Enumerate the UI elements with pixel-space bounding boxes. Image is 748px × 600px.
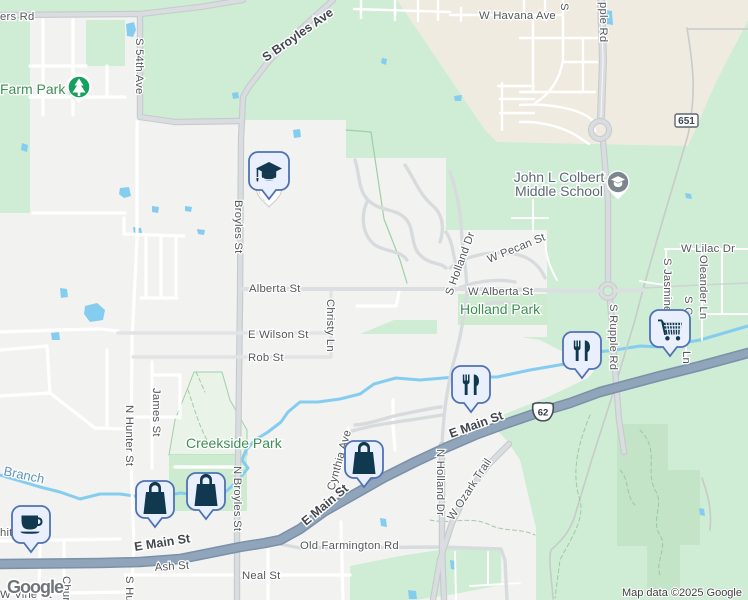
svg-text:Ln: Ln [680,351,692,364]
svg-text:Farm Park: Farm Park [0,81,66,97]
svg-text:Old Farmington Rd: Old Farmington Rd [300,540,399,552]
svg-text:Google: Google [7,577,64,597]
svg-text:S Hu: S Hu [123,576,135,600]
svg-text:S: S [558,3,570,11]
svg-text:Broyles St: Broyles St [232,200,244,254]
svg-text:Ash St: Ash St [154,560,190,574]
svg-text:James St: James St [150,388,162,437]
svg-text:N Holland Dr: N Holland Dr [434,449,446,516]
svg-text:Map data ©2025 Google: Map data ©2025 Google [622,587,742,599]
svg-text:651: 651 [678,116,695,127]
svg-text:62: 62 [538,408,549,419]
svg-text:W Lilac Dr: W Lilac Dr [681,243,735,255]
svg-text:W Havana Ave: W Havana Ave [479,10,556,22]
svg-text:Christy Ln: Christy Ln [324,299,336,352]
svg-text:Middle School: Middle School [515,183,603,199]
svg-text:pple Rd: pple Rd [597,2,609,42]
svg-text:N Broyles St: N Broyles St [231,466,243,532]
svg-text:N Hunter St: N Hunter St [123,405,135,467]
svg-text:S 54th Ave: S 54th Ave [133,38,145,94]
svg-text:Holland Park: Holland Park [460,301,541,317]
svg-text:ers Rd: ers Rd [0,11,34,23]
svg-text:S Jasmine: S Jasmine [661,258,673,313]
svg-text:Rob St: Rob St [248,352,284,364]
svg-text:W Alberta St: W Alberta St [468,286,534,298]
svg-text:Creekside Park: Creekside Park [186,435,283,451]
svg-text:Oleander Ln: Oleander Ln [697,255,709,319]
svg-text:S Rupple Rd: S Rupple Rd [607,304,619,370]
svg-text:Alberta St: Alberta St [249,283,301,295]
svg-text:Neal St: Neal St [242,570,281,582]
svg-text:E Wilson St: E Wilson St [248,329,309,341]
